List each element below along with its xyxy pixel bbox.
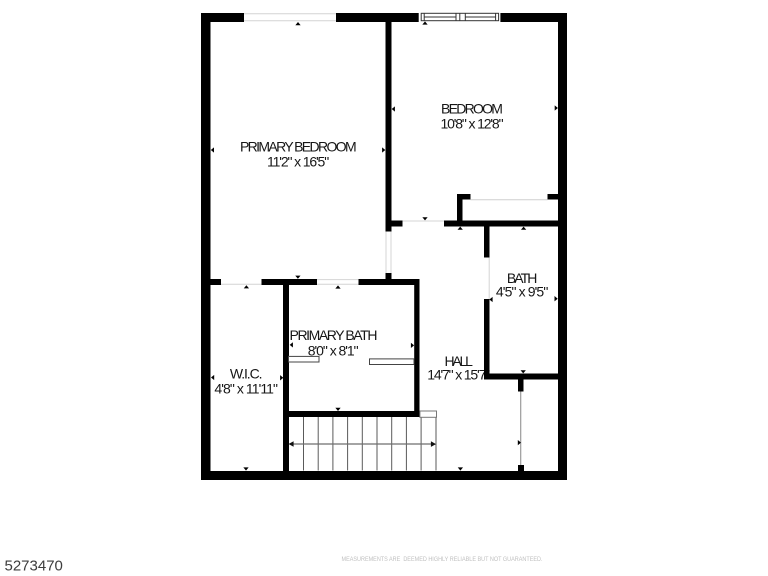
svg-text:PRIMARY BEDROOM: PRIMARY BEDROOM xyxy=(240,139,357,155)
svg-text:11'2" x 16'5": 11'2" x 16'5" xyxy=(267,153,329,169)
svg-text:PRIMARY BATH: PRIMARY BATH xyxy=(290,327,378,343)
svg-text:10'8" x 12'8": 10'8" x 12'8" xyxy=(440,116,503,132)
svg-text:4'8" x 11'11": 4'8" x 11'11" xyxy=(214,380,278,396)
svg-text:MEASUREMENTS ARE DEEMED HIGHL: MEASUREMENTS ARE DEEMED HIGHLY RELIABLE … xyxy=(342,557,543,563)
svg-text:4'5" x 9'5": 4'5" x 9'5" xyxy=(496,284,548,300)
svg-text:BEDROOM: BEDROOM xyxy=(441,100,503,116)
svg-text:W.I.C.: W.I.C. xyxy=(230,366,263,382)
svg-text:5273470: 5273470 xyxy=(5,557,63,574)
svg-text:14'7" x 15'7": 14'7" x 15'7" xyxy=(427,367,490,383)
